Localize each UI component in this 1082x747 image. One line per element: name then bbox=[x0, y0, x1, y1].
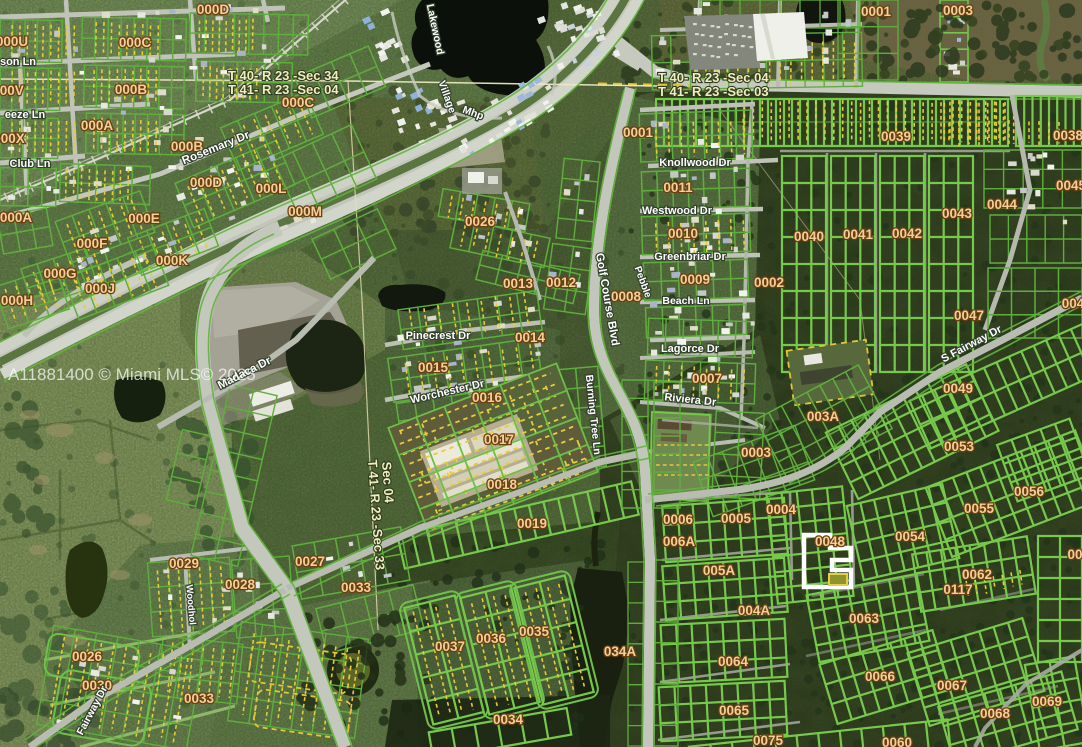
svg-text:034A: 034A bbox=[604, 644, 637, 659]
svg-text:Club Ln: Club Ln bbox=[10, 158, 51, 170]
svg-text:000U: 000U bbox=[0, 34, 28, 49]
svg-text:T 40- R 23 -Sec 04: T 40- R 23 -Sec 04 bbox=[658, 70, 769, 85]
svg-text:0016: 0016 bbox=[472, 390, 503, 405]
svg-text:006A: 006A bbox=[663, 534, 696, 549]
svg-text:000J: 000J bbox=[85, 281, 115, 296]
svg-text:Westwood Dr: Westwood Dr bbox=[642, 205, 713, 217]
svg-text:0042: 0042 bbox=[892, 226, 922, 241]
svg-text:000E: 000E bbox=[128, 211, 160, 226]
svg-text:0003: 0003 bbox=[943, 3, 974, 18]
svg-text:000M: 000M bbox=[288, 204, 322, 219]
svg-text:0012: 0012 bbox=[546, 275, 576, 290]
svg-text:0065: 0065 bbox=[719, 703, 750, 718]
svg-text:0041: 0041 bbox=[843, 227, 874, 242]
svg-text:0033: 0033 bbox=[341, 580, 372, 595]
svg-text:Beach Ln: Beach Ln bbox=[662, 295, 709, 307]
svg-text:0045: 0045 bbox=[1056, 178, 1082, 193]
svg-text:005A: 005A bbox=[703, 563, 736, 578]
svg-text:0044: 0044 bbox=[987, 197, 1018, 212]
svg-text:0010: 0010 bbox=[668, 226, 698, 241]
svg-text:eeze Ln: eeze Ln bbox=[5, 109, 46, 121]
svg-text:Lagorce Dr: Lagorce Dr bbox=[661, 343, 720, 355]
svg-text:0008: 0008 bbox=[611, 289, 642, 304]
svg-text:000X: 000X bbox=[0, 131, 25, 146]
svg-text:Greenbriar Dr: Greenbriar Dr bbox=[654, 251, 726, 263]
svg-text:0069: 0069 bbox=[1032, 694, 1062, 709]
svg-text:T 40- R 23 -Sec 34: T 40- R 23 -Sec 34 bbox=[228, 68, 339, 83]
svg-text:0049: 0049 bbox=[943, 381, 973, 396]
svg-text:0053: 0053 bbox=[944, 439, 975, 454]
svg-text:000V: 000V bbox=[0, 83, 24, 98]
svg-text:0064: 0064 bbox=[718, 654, 749, 669]
svg-text:000H: 000H bbox=[1, 293, 33, 308]
svg-text:Knollwood Dr: Knollwood Dr bbox=[659, 157, 731, 169]
svg-text:0054: 0054 bbox=[895, 529, 926, 544]
svg-text:0003: 0003 bbox=[741, 445, 772, 460]
svg-text:0033: 0033 bbox=[184, 691, 215, 706]
svg-text:0067: 0067 bbox=[937, 678, 967, 693]
svg-text:0066: 0066 bbox=[865, 669, 896, 684]
svg-text:0036: 0036 bbox=[476, 631, 507, 646]
svg-text:0019: 0019 bbox=[517, 516, 547, 531]
svg-text:0004: 0004 bbox=[766, 502, 797, 517]
svg-text:0043: 0043 bbox=[942, 206, 973, 221]
svg-text:000B: 000B bbox=[115, 82, 148, 97]
svg-text:0034: 0034 bbox=[493, 712, 524, 727]
svg-text:0060: 0060 bbox=[882, 735, 912, 747]
svg-text:0014: 0014 bbox=[515, 330, 546, 345]
svg-text:000D: 000D bbox=[190, 175, 223, 190]
svg-text:0013: 0013 bbox=[503, 276, 534, 291]
svg-text:000G: 000G bbox=[43, 266, 76, 281]
svg-text:000A: 000A bbox=[81, 118, 114, 133]
svg-text:Sec 04: Sec 04 bbox=[379, 461, 397, 504]
svg-text:0040: 0040 bbox=[794, 229, 824, 244]
svg-text:0006: 0006 bbox=[663, 512, 694, 527]
svg-text:son Ln: son Ln bbox=[0, 56, 36, 68]
svg-text:00: 00 bbox=[1067, 547, 1082, 562]
svg-text:000D: 000D bbox=[197, 2, 230, 17]
svg-text:0017: 0017 bbox=[484, 432, 514, 447]
svg-text:0038: 0038 bbox=[1053, 128, 1082, 143]
svg-text:0026: 0026 bbox=[72, 649, 103, 664]
svg-text:0015: 0015 bbox=[418, 360, 449, 375]
svg-text:A11881400 © Miami MLS© 2025: A11881400 © Miami MLS© 2025 bbox=[8, 365, 256, 384]
svg-text:004A: 004A bbox=[738, 603, 771, 618]
svg-text:003A: 003A bbox=[807, 409, 840, 424]
svg-text:0029: 0029 bbox=[169, 556, 199, 571]
svg-text:0026: 0026 bbox=[465, 214, 496, 229]
svg-text:0011: 0011 bbox=[663, 180, 693, 195]
svg-text:0037: 0037 bbox=[435, 639, 465, 654]
svg-text:000K: 000K bbox=[156, 253, 189, 268]
svg-text:0005: 0005 bbox=[721, 511, 752, 526]
svg-text:0048: 0048 bbox=[815, 534, 846, 549]
svg-text:0007: 0007 bbox=[692, 371, 722, 386]
svg-text:Pinecrest Dr: Pinecrest Dr bbox=[406, 330, 472, 342]
svg-text:0001: 0001 bbox=[861, 4, 892, 19]
svg-text:000F: 000F bbox=[77, 236, 108, 251]
svg-text:0068: 0068 bbox=[980, 706, 1011, 721]
svg-text:000C: 000C bbox=[119, 35, 152, 50]
svg-text:0075: 0075 bbox=[753, 733, 784, 747]
svg-text:0039: 0039 bbox=[881, 129, 911, 144]
svg-text:0001: 0001 bbox=[623, 125, 654, 140]
svg-text:000C: 000C bbox=[282, 95, 315, 110]
svg-text:0055: 0055 bbox=[964, 501, 995, 516]
svg-text:0002: 0002 bbox=[754, 275, 784, 290]
svg-text:000A: 000A bbox=[0, 210, 32, 225]
svg-text:0062: 0062 bbox=[962, 567, 992, 582]
svg-text:0035: 0035 bbox=[519, 624, 550, 639]
svg-text:0063: 0063 bbox=[849, 611, 880, 626]
svg-text:0028: 0028 bbox=[225, 577, 256, 592]
svg-text:000L: 000L bbox=[256, 181, 287, 196]
svg-text:0117: 0117 bbox=[943, 582, 972, 597]
svg-text:0047: 0047 bbox=[954, 308, 984, 323]
svg-text:T 41- R 23 -Sec 04: T 41- R 23 -Sec 04 bbox=[228, 82, 339, 97]
svg-text:0027: 0027 bbox=[295, 554, 325, 569]
svg-text:004: 004 bbox=[1062, 296, 1082, 311]
svg-text:0018: 0018 bbox=[487, 477, 518, 492]
svg-text:0056: 0056 bbox=[1014, 484, 1045, 499]
svg-text:T 41- R 23 -Sec 03: T 41- R 23 -Sec 03 bbox=[658, 84, 769, 99]
svg-text:0009: 0009 bbox=[680, 272, 710, 287]
